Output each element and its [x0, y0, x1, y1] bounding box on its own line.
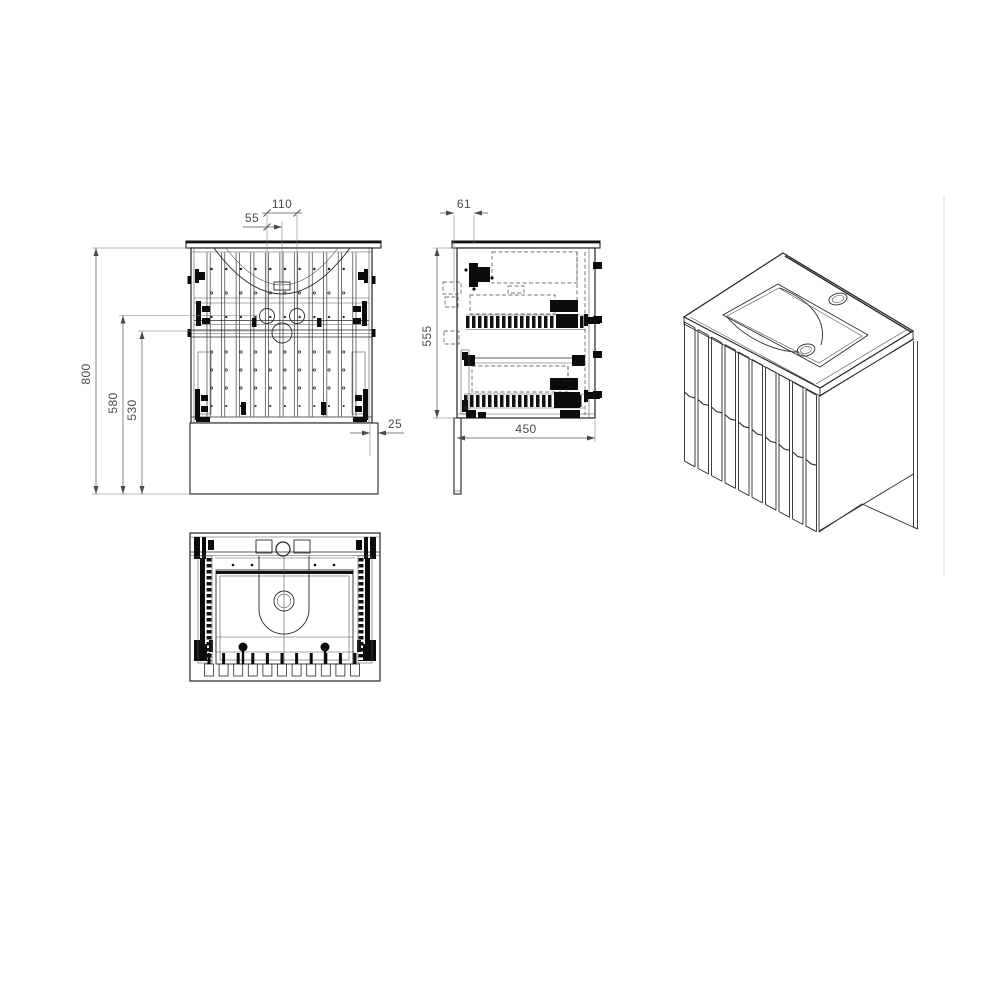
side-view	[443, 241, 602, 494]
dim-label-110: 110	[272, 197, 292, 211]
side-panel-leg	[454, 418, 461, 494]
side-panel-legs	[190, 423, 378, 494]
isometric-view	[684, 253, 918, 532]
iso-countertop	[684, 253, 913, 388]
dim-label-55: 55	[245, 211, 259, 225]
dim-label-450: 450	[515, 422, 536, 436]
dim-label-555: 555	[420, 325, 434, 346]
dim-label-530: 530	[125, 399, 139, 420]
dim-label-580: 580	[106, 392, 120, 413]
dim-label-61: 61	[457, 197, 471, 211]
front-view	[186, 241, 381, 494]
dim-label-800: 800	[79, 363, 93, 384]
top-plan-view	[190, 533, 380, 681]
dim-label-25: 25	[388, 417, 402, 431]
technical-drawing: 800 580 530 110 55 25	[0, 0, 1000, 1000]
drawing-sheet: 800 580 530 110 55 25	[0, 0, 1000, 1000]
